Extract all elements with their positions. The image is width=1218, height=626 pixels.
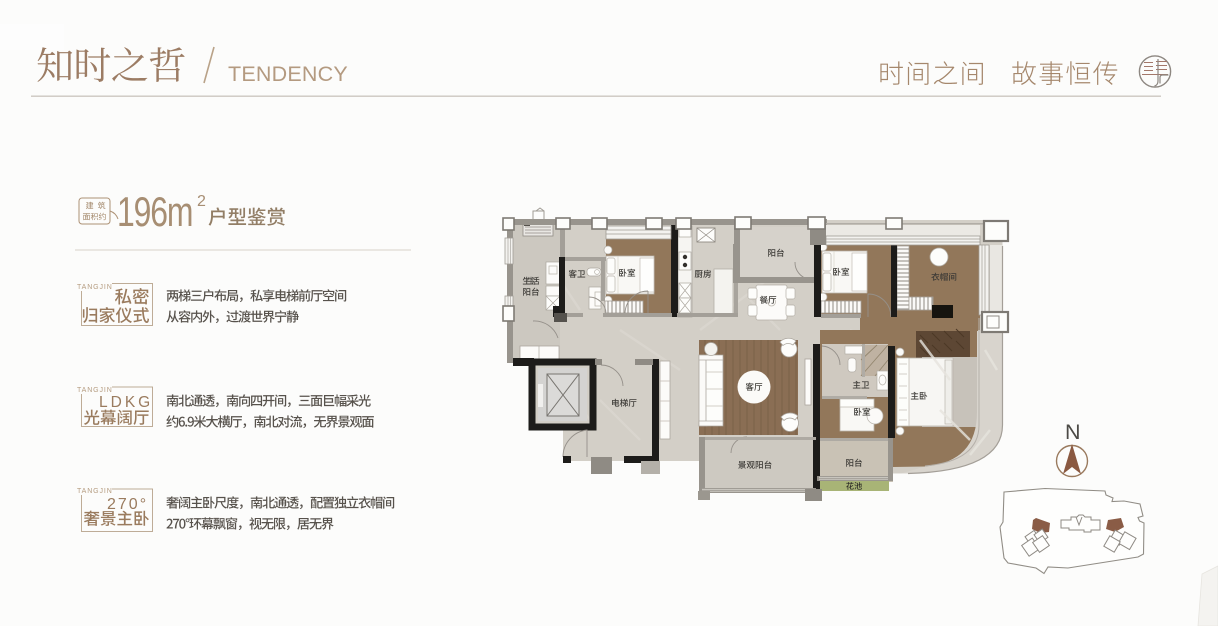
svg-text:270°: 270° <box>107 496 148 513</box>
svg-text:TANGJIN: TANGJIN <box>77 488 113 495</box>
svg-text:LDKG: LDKG <box>99 394 153 411</box>
svg-text:TANGJIN: TANGJIN <box>77 387 113 394</box>
svg-text:TENDENCY: TENDENCY <box>228 62 348 86</box>
svg-text:196m: 196m <box>117 188 192 235</box>
svg-text:TANGJIN: TANGJIN <box>77 284 113 291</box>
svg-text:N: N <box>1065 420 1081 444</box>
svg-text:2: 2 <box>197 193 206 210</box>
